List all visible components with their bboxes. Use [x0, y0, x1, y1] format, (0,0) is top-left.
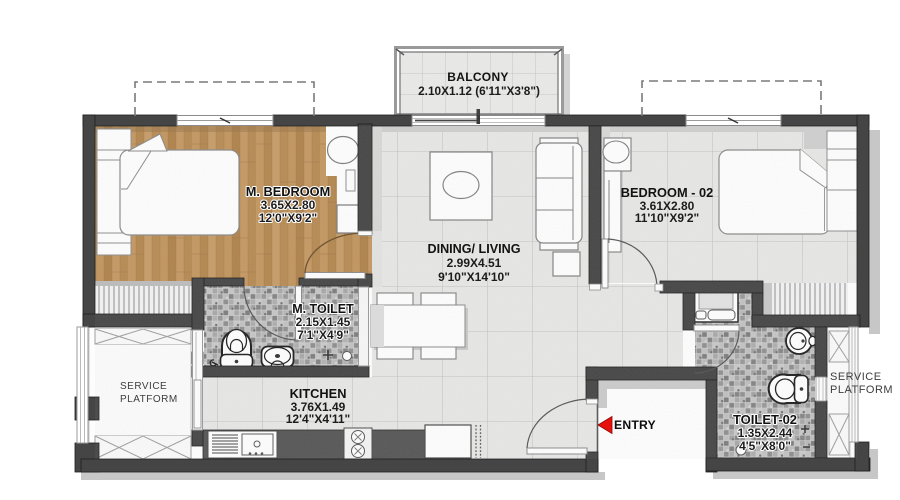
svg-text:12'4"X4'11": 12'4"X4'11" — [286, 412, 350, 426]
svg-text:BEDROOM - 02: BEDROOM - 02 — [621, 185, 713, 200]
svg-text:SERVICE: SERVICE — [120, 381, 167, 392]
svg-text:2.15X1.45: 2.15X1.45 — [296, 315, 351, 329]
svg-text:KITCHEN: KITCHEN — [290, 386, 347, 401]
svg-text:M. TOILET: M. TOILET — [292, 302, 354, 316]
svg-text:9'10"X14'10": 9'10"X14'10" — [438, 270, 510, 284]
svg-text:2.99X4.51: 2.99X4.51 — [447, 256, 502, 270]
svg-text:11'10"X9'2": 11'10"X9'2" — [635, 211, 699, 225]
svg-text:2.10X1.12 (6'11"X3'8"): 2.10X1.12 (6'11"X3'8") — [418, 84, 540, 98]
svg-text:7'1"X4'9": 7'1"X4'9" — [297, 328, 349, 342]
svg-text:ENTRY: ENTRY — [614, 418, 656, 432]
svg-text:12'0"X9'2": 12'0"X9'2" — [259, 211, 317, 225]
svg-text:4'5"X8'0": 4'5"X8'0" — [739, 439, 791, 453]
svg-text:SERVICE: SERVICE — [830, 371, 882, 383]
svg-text:1.35X2.44: 1.35X2.44 — [738, 426, 793, 440]
svg-text:TOILET-02: TOILET-02 — [733, 412, 797, 427]
svg-text:PLATFORM: PLATFORM — [120, 394, 178, 405]
svg-text:3.65X2.80: 3.65X2.80 — [261, 198, 316, 212]
svg-text:PLATFORM: PLATFORM — [830, 384, 893, 396]
svg-text:BALCONY: BALCONY — [447, 70, 508, 84]
svg-text:DINING/ LIVING: DINING/ LIVING — [427, 242, 520, 256]
svg-text:M. BEDROOM: M. BEDROOM — [246, 184, 331, 199]
